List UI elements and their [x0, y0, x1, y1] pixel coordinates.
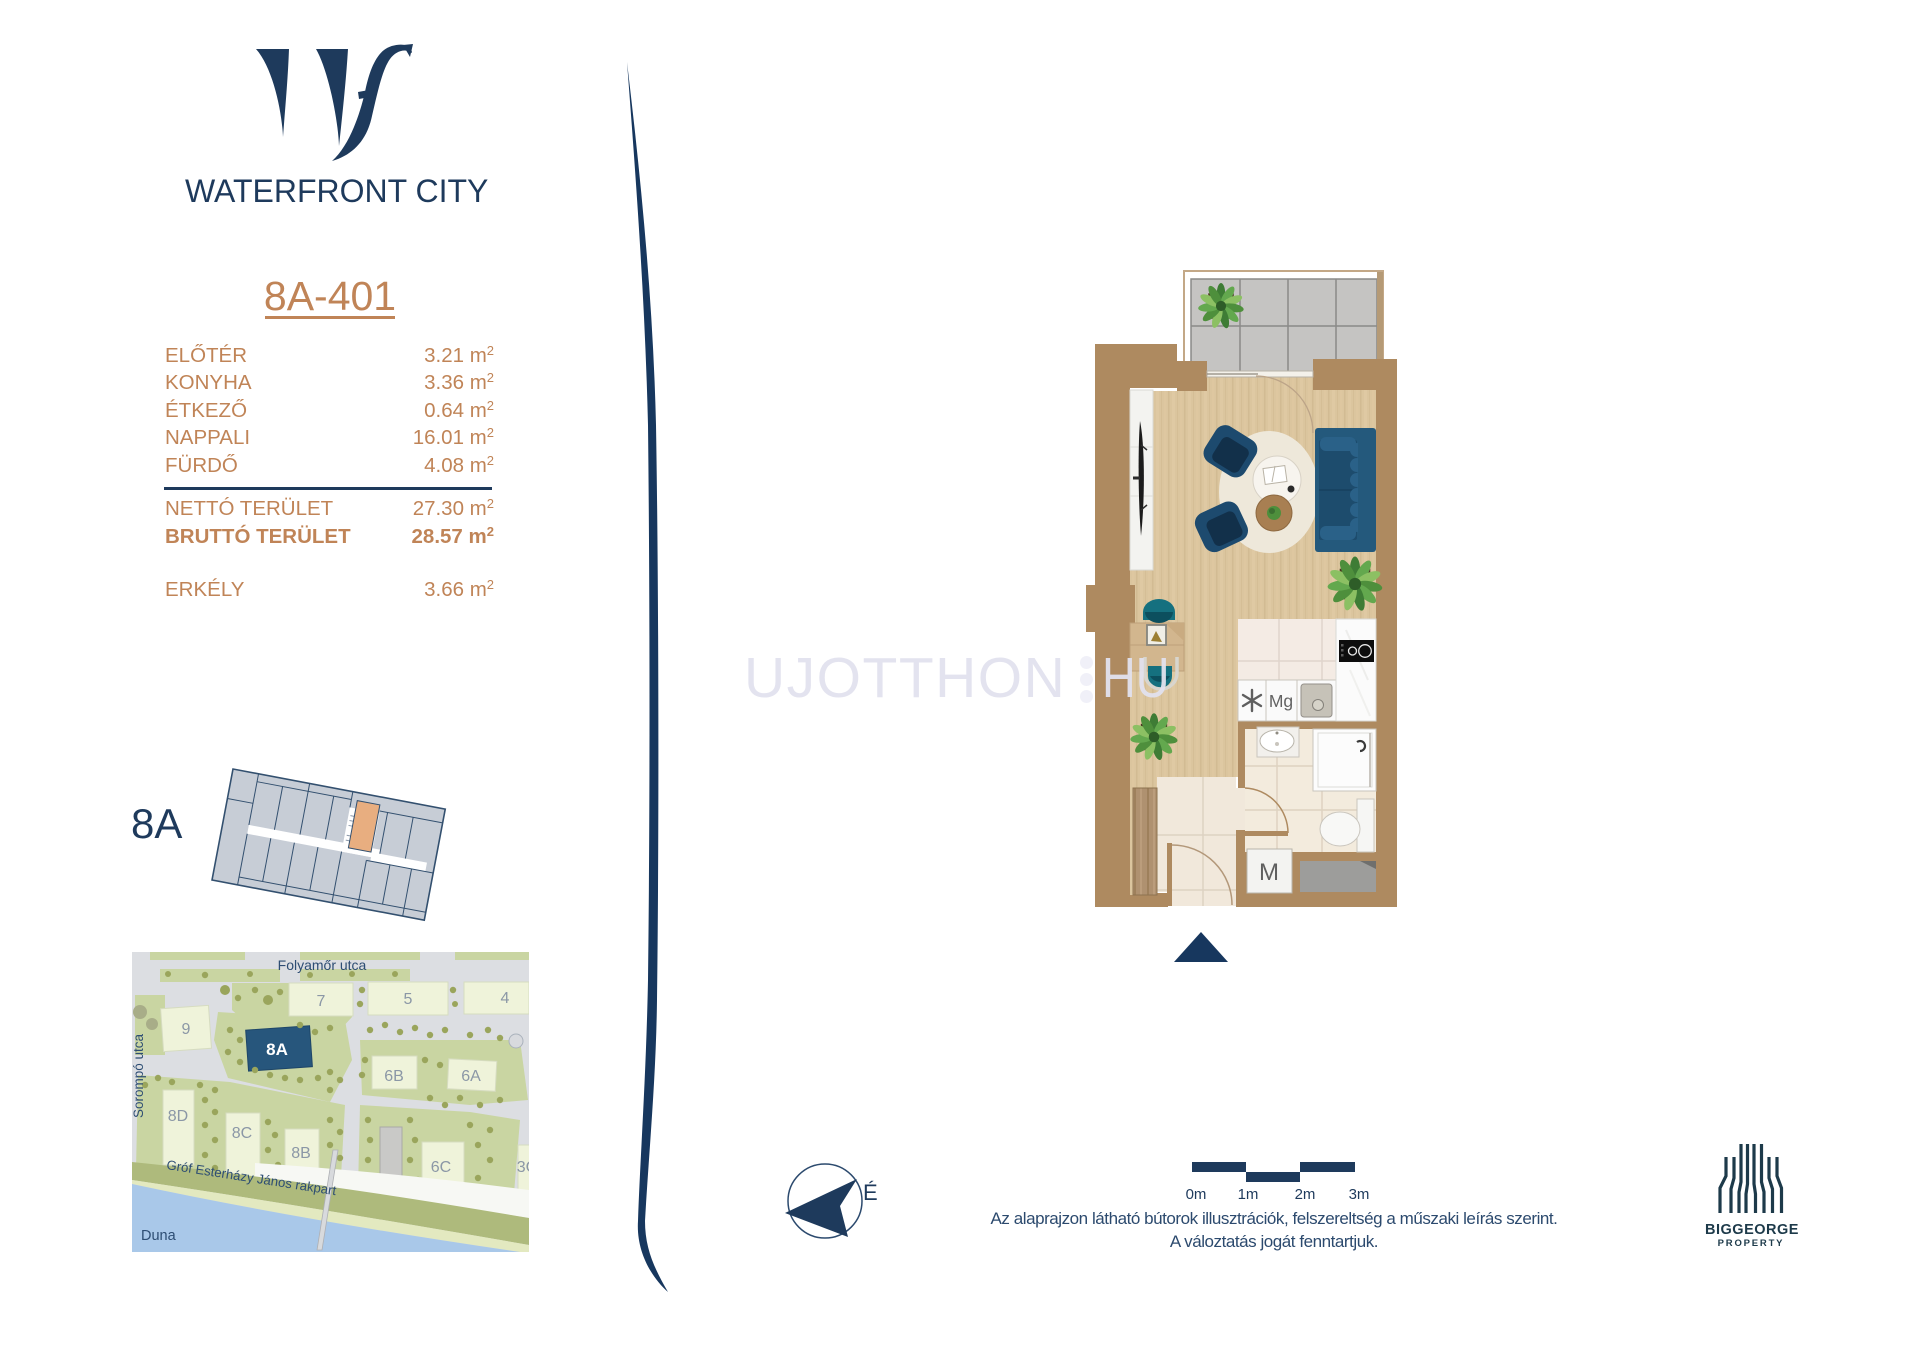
svg-text:4: 4 [501, 990, 510, 1007]
svg-text:PROPERTY: PROPERTY [1718, 1238, 1785, 1249]
svg-text:9: 9 [182, 1021, 191, 1038]
svg-text:M: M [1259, 859, 1279, 886]
svg-text:Folyamőr utca: Folyamőr utca [278, 957, 367, 973]
svg-text:Duna: Duna [141, 1228, 177, 1244]
svg-text:Sorompó utca: Sorompó utca [132, 1033, 146, 1118]
svg-text:É: É [863, 1180, 878, 1205]
svg-text:3C: 3C [517, 1159, 529, 1176]
svg-text:8C: 8C [232, 1125, 252, 1142]
svg-text:Mg: Mg [1269, 691, 1293, 711]
svg-text:8D: 8D [168, 1108, 188, 1125]
svg-text:BIGGEORGE: BIGGEORGE [1705, 1222, 1799, 1238]
svg-text:6C: 6C [431, 1159, 451, 1176]
svg-text:7: 7 [317, 993, 326, 1010]
svg-text:5: 5 [404, 991, 413, 1008]
svg-text:6A: 6A [461, 1068, 481, 1085]
svg-text:8A: 8A [266, 1040, 288, 1059]
svg-text:6B: 6B [384, 1068, 404, 1085]
svg-text:8B: 8B [291, 1145, 311, 1162]
